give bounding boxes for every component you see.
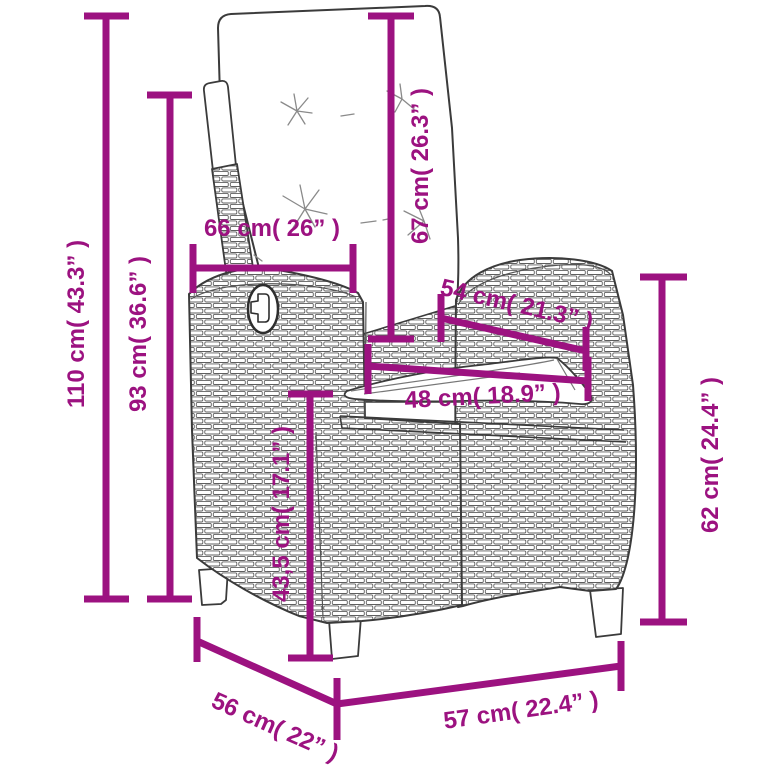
rear-right-leg (590, 588, 623, 637)
dim-total-width: 57 cm( 22.4” ) (337, 641, 621, 735)
dim-backrest-height-label: 93 cm( 36.6” ) (125, 256, 152, 412)
dim-seat-depth: 56 cm( 22” ) (197, 617, 343, 767)
dim-total-height: 110 cm( 43.3” ) (63, 16, 129, 599)
dim-total-height-label: 110 cm( 43.3” ) (63, 240, 90, 408)
dim-armrest-height-label: 62 cm( 24.4” ) (697, 377, 724, 533)
dim-total-width-label: 57 cm( 22.4” ) (442, 686, 600, 734)
recline-knob (248, 285, 278, 333)
diagram-canvas: 110 cm( 43.3” ) 93 cm( 36.6” ) 66 cm( 26… (0, 0, 767, 767)
dim-back-cushion-length-label: 67 cm( 26.3” ) (407, 88, 434, 244)
dim-seat-height-label: 43,5 cm( 17.1” ) (268, 426, 295, 602)
dim-backrest-width-label: 66 cm( 26” ) (204, 215, 340, 242)
dim-backrest-height: 93 cm( 36.6” ) (125, 95, 192, 599)
dimension-diagram: 110 cm( 43.3” ) 93 cm( 36.6” ) 66 cm( 26… (0, 0, 767, 767)
dim-armrest-height: 62 cm( 24.4” ) (640, 277, 724, 622)
